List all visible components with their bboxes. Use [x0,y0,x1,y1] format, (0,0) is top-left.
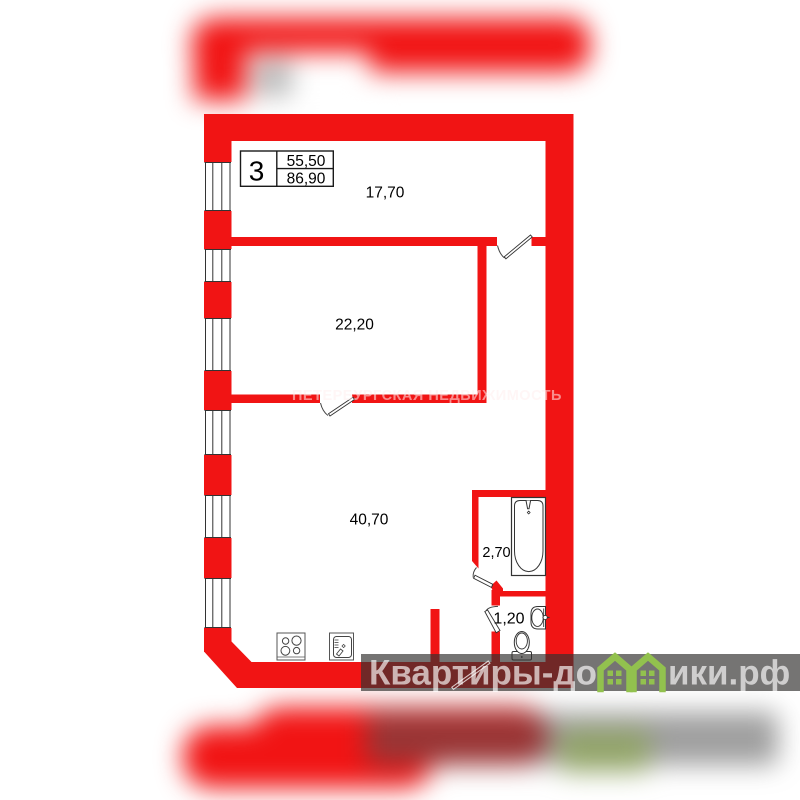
svg-text:40,70: 40,70 [350,512,389,529]
svg-text:Квартиры-до: Квартиры-до [369,654,597,693]
svg-text:2,70: 2,70 [482,545,510,561]
svg-text:86,90: 86,90 [287,171,326,188]
svg-text:1,20: 1,20 [493,611,524,628]
svg-text:ПЕТЕРБУРГСКАЯ НЕДВИЖИМОСТЬ: ПЕТЕРБУРГСКАЯ НЕДВИЖИМОСТЬ [292,388,562,404]
svg-text:55,50: 55,50 [287,153,326,170]
svg-text:ики.рф: ики.рф [668,654,790,693]
svg-text:17,70: 17,70 [366,185,405,202]
svg-text:3: 3 [249,156,265,187]
svg-text:22,20: 22,20 [335,317,374,334]
